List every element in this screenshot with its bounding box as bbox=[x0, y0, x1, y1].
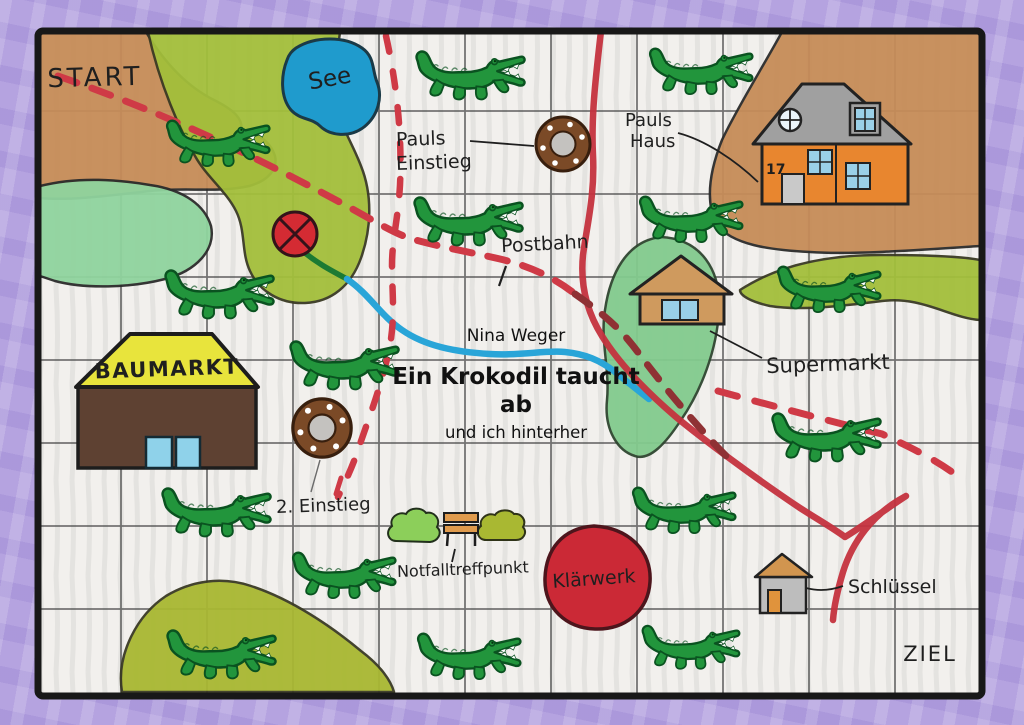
baumarkt-label: BAUMARKT bbox=[94, 354, 239, 383]
book-title-line2: ab bbox=[500, 392, 532, 418]
manhole-pauls-einstieg bbox=[536, 117, 590, 171]
zweiter-einstieg-label: 2. Einstieg bbox=[276, 494, 371, 518]
pauls-haus-label-line1: Pauls bbox=[625, 110, 672, 131]
pauls-einstieg-label-line1: Pauls bbox=[396, 127, 446, 151]
terrain-light-green-left bbox=[40, 180, 212, 287]
book-author: Nina Weger bbox=[467, 326, 566, 346]
pauls-einstieg-label-line2: Einstieg bbox=[396, 150, 472, 175]
ziel-label: ZIEL bbox=[903, 642, 957, 666]
map-illustration: 17 BAUMARKT Klärwerk bbox=[0, 0, 1024, 725]
schluessel-label: Schlüssel bbox=[848, 576, 937, 598]
baumarkt-door bbox=[146, 437, 172, 468]
house-number: 17 bbox=[766, 162, 785, 178]
supermarkt-label: Supermarkt bbox=[766, 350, 890, 378]
front-door bbox=[782, 174, 804, 204]
valve-wheel-icon bbox=[273, 212, 317, 256]
start-label: START bbox=[47, 62, 143, 94]
baumarkt-door bbox=[176, 437, 200, 468]
book-subtitle: und ich hinterher bbox=[445, 423, 587, 442]
manhole-zweiter-einstieg bbox=[293, 399, 351, 457]
pauls-haus-label-line2: Haus bbox=[630, 131, 675, 152]
klaerwerk-site: Klärwerk bbox=[545, 526, 650, 629]
scanned-game-board: 17 BAUMARKT Klärwerk bbox=[0, 0, 1024, 725]
postbahn-label: Postbahn bbox=[501, 231, 590, 258]
book-title-line1: Ein Krokodil taucht bbox=[392, 364, 640, 390]
